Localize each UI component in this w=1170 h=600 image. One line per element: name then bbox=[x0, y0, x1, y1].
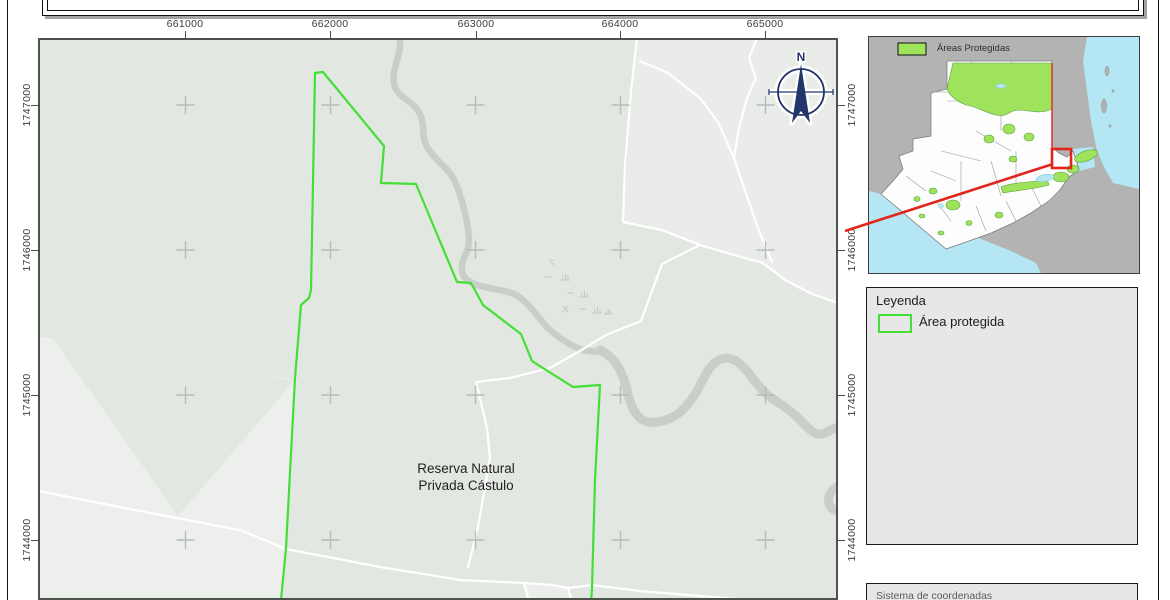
grid-tick bbox=[31, 250, 38, 251]
grid-tick bbox=[765, 31, 766, 38]
footer-info-box: Sistema de coordenadas bbox=[866, 583, 1138, 600]
protected-area-swatch bbox=[878, 314, 912, 333]
river-bend-east bbox=[829, 484, 838, 511]
inset-map-drawing bbox=[869, 37, 1139, 273]
footer-text: Sistema de coordenadas bbox=[876, 590, 992, 600]
grid-label-top-2: 662000 bbox=[312, 18, 349, 30]
grid-tick bbox=[185, 31, 186, 38]
river-lower bbox=[600, 350, 838, 434]
main-map-canvas: N Reserva Natural Privada Cástulo bbox=[38, 38, 838, 600]
grid-label-top-5: 665000 bbox=[747, 18, 784, 30]
map-layout-page: N Reserva Natural Privada Cástulo 661000… bbox=[0, 0, 1170, 600]
grid-tick bbox=[838, 250, 845, 251]
grid-tick bbox=[838, 540, 845, 541]
inset-legend-swatch bbox=[898, 43, 926, 55]
grid-tick bbox=[838, 395, 845, 396]
inset-overview-map: Áreas Protegidas bbox=[868, 36, 1140, 274]
grid-label-right-4: 1744000 bbox=[846, 519, 858, 562]
marsh-symbols bbox=[545, 260, 612, 314]
legend-title: Leyenda bbox=[876, 293, 926, 308]
grid-tick bbox=[31, 105, 38, 106]
north-arrow-label: N bbox=[797, 50, 806, 64]
protected-area-label-line1: Reserva Natural bbox=[417, 460, 515, 477]
title-box-inner-frame bbox=[47, 0, 1139, 11]
main-map-drawing: N bbox=[38, 38, 838, 600]
grid-tick bbox=[31, 540, 38, 541]
grid-tick bbox=[31, 395, 38, 396]
inset-legend-label: Áreas Protegidas bbox=[937, 43, 1010, 54]
grid-tick bbox=[620, 31, 621, 38]
grid-label-top-3: 663000 bbox=[458, 18, 495, 30]
protected-area-label: Reserva Natural Privada Cástulo bbox=[417, 460, 515, 494]
grid-label-top-4: 664000 bbox=[602, 18, 639, 30]
parcel-light-northeast bbox=[624, 38, 838, 302]
grid-label-right-3: 1745000 bbox=[846, 374, 858, 417]
grid-label-right-1: 1747000 bbox=[846, 84, 858, 127]
road-branch-1 bbox=[568, 588, 572, 600]
legend-item-label: Área protegida bbox=[919, 314, 1004, 329]
river-upper bbox=[394, 38, 604, 353]
grid-tick bbox=[476, 31, 477, 38]
protected-area-label-line2: Privada Cástulo bbox=[417, 477, 515, 494]
grid-tick bbox=[330, 31, 331, 38]
grid-label-right-2: 1746000 bbox=[846, 229, 858, 272]
title-box bbox=[42, 0, 1144, 16]
grid-tick bbox=[838, 105, 845, 106]
legend-box: Leyenda Área protegida bbox=[866, 287, 1138, 545]
grid-label-top-1: 661000 bbox=[167, 18, 204, 30]
